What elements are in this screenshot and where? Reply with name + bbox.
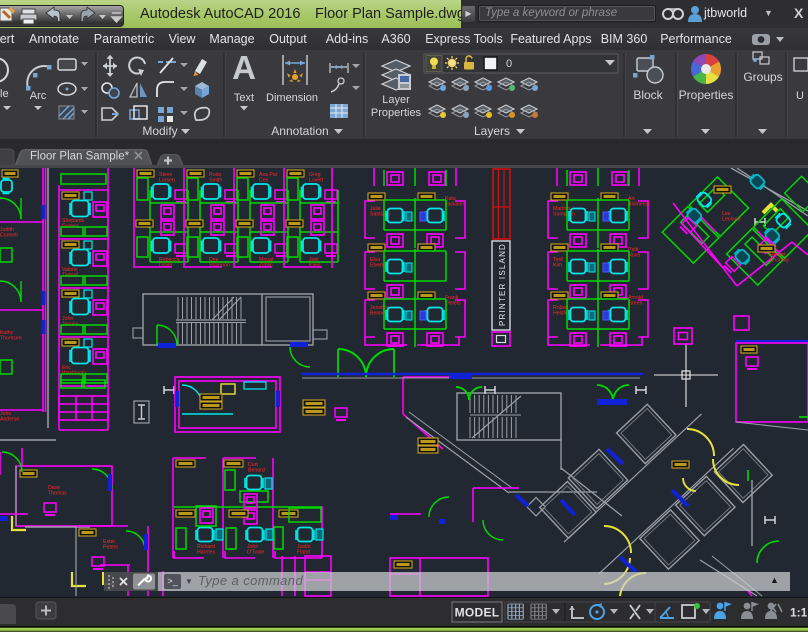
- svg-text:U: U: [796, 90, 804, 102]
- svg-text:JustinFland: JustinFland: [297, 544, 311, 555]
- svg-text:A: A: [232, 50, 256, 86]
- svg-text:Dimension: Dimension: [266, 92, 318, 104]
- svg-text:PRINTER ISLAND: PRINTER ISLAND: [498, 243, 507, 326]
- svg-text:Block: Block: [633, 88, 663, 102]
- svg-text:Groups: Groups: [743, 70, 782, 84]
- svg-text:Properties: Properties: [371, 107, 422, 119]
- svg-text:Layers: Layers: [474, 124, 510, 138]
- svg-text:Floor Plan Sample*: Floor Plan Sample*: [30, 151, 130, 163]
- svg-text:RudoSmith: RudoSmith: [209, 172, 222, 183]
- svg-text:Modify: Modify: [142, 124, 177, 138]
- svg-text:1:1: 1:1: [790, 606, 808, 620]
- svg-text:Text: Text: [234, 92, 254, 104]
- svg-text:MODEL: MODEL: [455, 606, 500, 620]
- svg-text:ArnoldGreen: ArnoldGreen: [628, 295, 643, 306]
- svg-text:Properties: Properties: [679, 88, 734, 102]
- svg-text:Layer: Layer: [382, 94, 410, 106]
- svg-text:Arc: Arc: [30, 90, 47, 102]
- svg-text:Annotation: Annotation: [271, 124, 328, 138]
- svg-text:TonfKim: TonfKim: [553, 257, 563, 268]
- svg-text:0: 0: [506, 58, 512, 70]
- svg-text:le: le: [0, 88, 9, 100]
- svg-text:RichardHarmes: RichardHarmes: [197, 544, 216, 555]
